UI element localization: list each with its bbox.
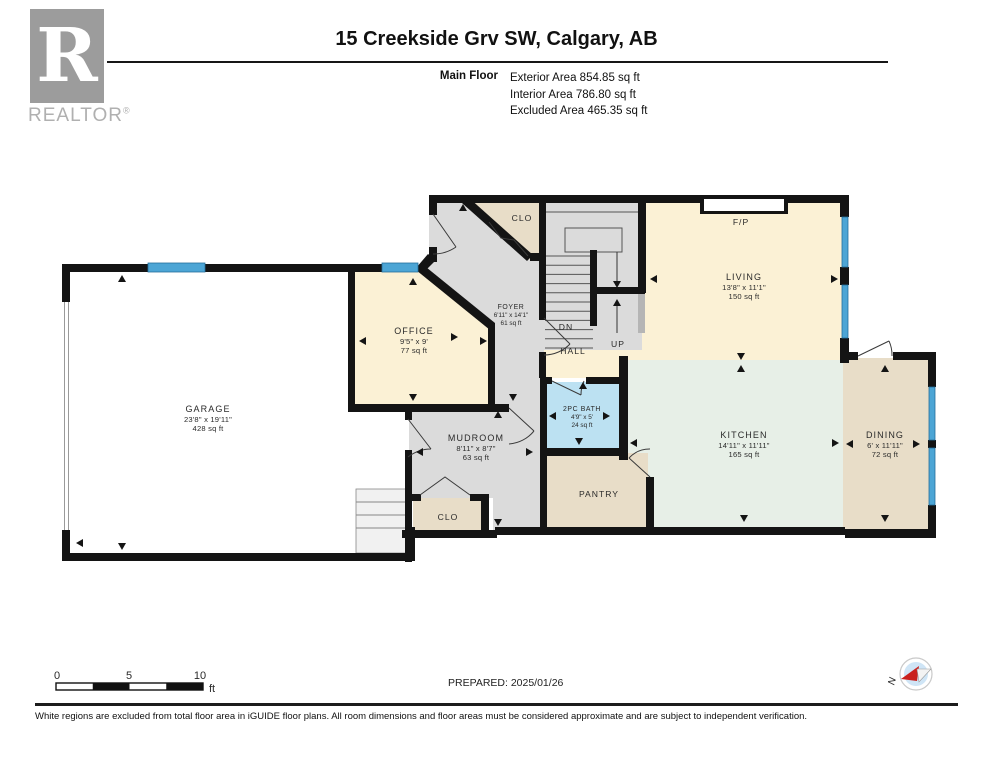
fireplace-label: F/P <box>733 217 749 227</box>
floorplan-page: R REALTOR® 15 Creekside Grv SW, Calgary,… <box>0 0 993 768</box>
dining-window-1 <box>929 387 935 440</box>
garage-label: GARAGE <box>185 404 230 414</box>
scale-0: 0 <box>54 670 60 682</box>
room-fills <box>66 198 930 556</box>
fireplace <box>704 199 784 211</box>
scale-10: 10 <box>194 670 206 682</box>
garage-window <box>148 263 205 272</box>
svg-text:77 sq ft: 77 sq ft <box>401 346 428 355</box>
svg-text:72 sq ft: 72 sq ft <box>872 450 899 459</box>
svg-text:14'11" x 11'11": 14'11" x 11'11" <box>718 441 770 450</box>
mudroom-corridor <box>493 408 540 532</box>
mudroom-closet-label: CLO <box>438 512 459 522</box>
garage-steps <box>356 489 406 553</box>
scale-unit: ft <box>209 683 215 695</box>
compass-north-letter: N <box>886 676 899 687</box>
living-window-2 <box>842 285 848 338</box>
svg-text:150 sq ft: 150 sq ft <box>729 292 761 301</box>
svg-text:6'11" x 14'1": 6'11" x 14'1" <box>494 312 529 319</box>
svg-text:8'11" x 8'7": 8'11" x 8'7" <box>456 444 495 453</box>
mudroom-label: MUDROOM <box>448 433 504 443</box>
svg-text:23'8" x 19'11": 23'8" x 19'11" <box>184 415 232 424</box>
living-label: LIVING <box>726 272 762 282</box>
up-label: UP <box>611 339 625 349</box>
floor-plan: GARAGE 23'8" x 19'11" 428 sq ft OFFICE 9… <box>0 0 993 768</box>
office-window <box>382 263 418 272</box>
prepared-date: PREPARED: 2025/01/26 <box>448 677 563 689</box>
footer-rule <box>35 703 958 706</box>
hall-label: HALL <box>560 346 586 356</box>
footer-disclaimer: White regions are excluded from total fl… <box>35 711 807 722</box>
kitchen-label: KITCHEN <box>720 430 767 440</box>
compass: N <box>886 658 932 690</box>
svg-text:6' x 11'11": 6' x 11'11" <box>867 441 903 450</box>
dining-exterior-door <box>858 341 892 356</box>
svg-text:61 sq ft: 61 sq ft <box>501 320 522 327</box>
living-window-1 <box>842 217 848 267</box>
foyer-label: FOYER <box>498 304 525 311</box>
office-label: OFFICE <box>394 326 434 336</box>
stair-half-wall <box>638 293 645 333</box>
svg-text:9'5" x 9': 9'5" x 9' <box>400 337 428 346</box>
svg-text:4'9" x 5': 4'9" x 5' <box>571 414 593 421</box>
svg-text:13'8" x 11'1": 13'8" x 11'1" <box>722 283 766 292</box>
dn-label: DN <box>559 322 573 332</box>
svg-text:63 sq ft: 63 sq ft <box>463 453 490 462</box>
scale-5: 5 <box>126 670 132 682</box>
svg-text:165 sq ft: 165 sq ft <box>729 450 761 459</box>
svg-text:428 sq ft: 428 sq ft <box>193 424 225 433</box>
dining-label: DINING <box>866 430 904 440</box>
svg-text:24 sq ft: 24 sq ft <box>572 422 593 429</box>
dining-window-2 <box>929 448 935 505</box>
scale-bar: 0 5 10 ft <box>54 670 215 695</box>
front-closet-label: CLO <box>512 213 533 223</box>
bath-label: 2PC BATH <box>563 406 601 413</box>
pantry-label: PANTRY <box>579 489 619 499</box>
